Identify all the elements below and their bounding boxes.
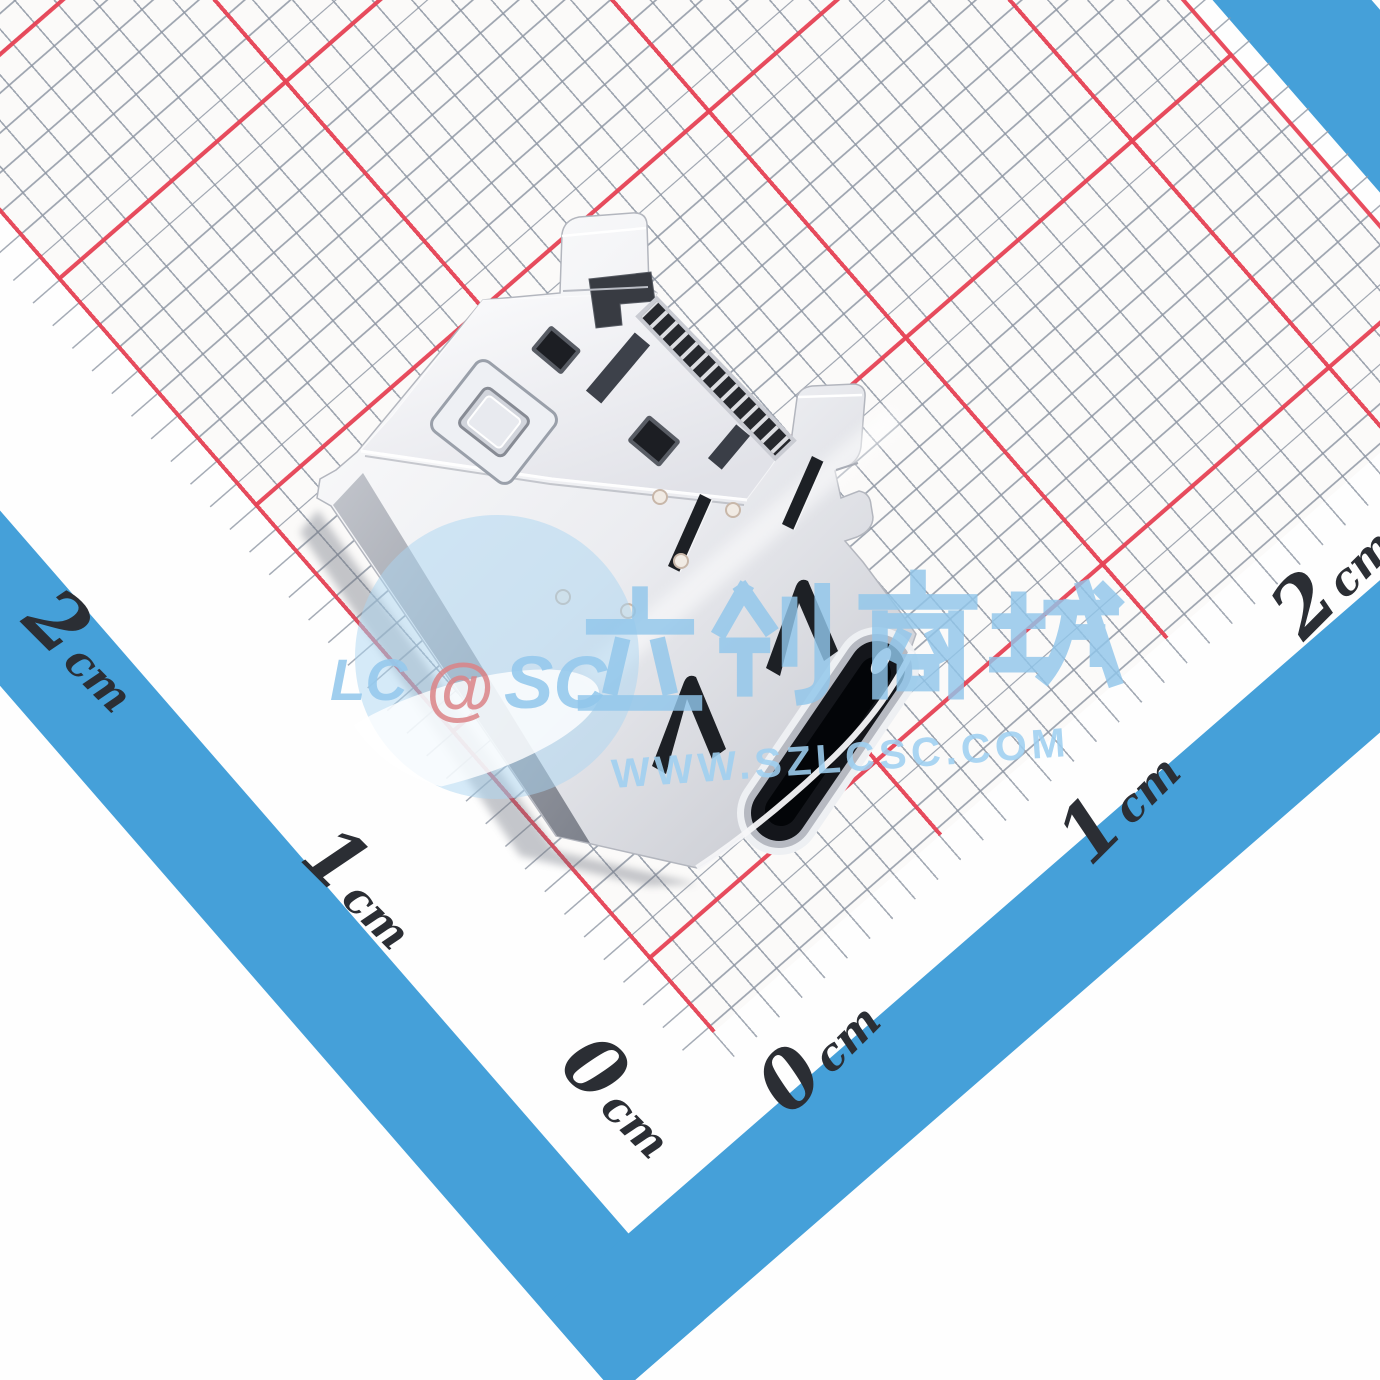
cn-glyph-cheng (997, 588, 1114, 678)
watermark-brand-lc: LC (330, 648, 408, 713)
watermark-brand-sc: SC (504, 641, 608, 724)
usb-type-c-connector (300, 213, 916, 886)
product-photo-scene: 2cm 1cm 0cm 0cm 1cm 2cm (0, 0, 1380, 1380)
watermark-brand-at: @ (426, 649, 494, 727)
component-and-watermark-art: LC @ SC WWW.SZLCSC.COM (0, 0, 1380, 1380)
